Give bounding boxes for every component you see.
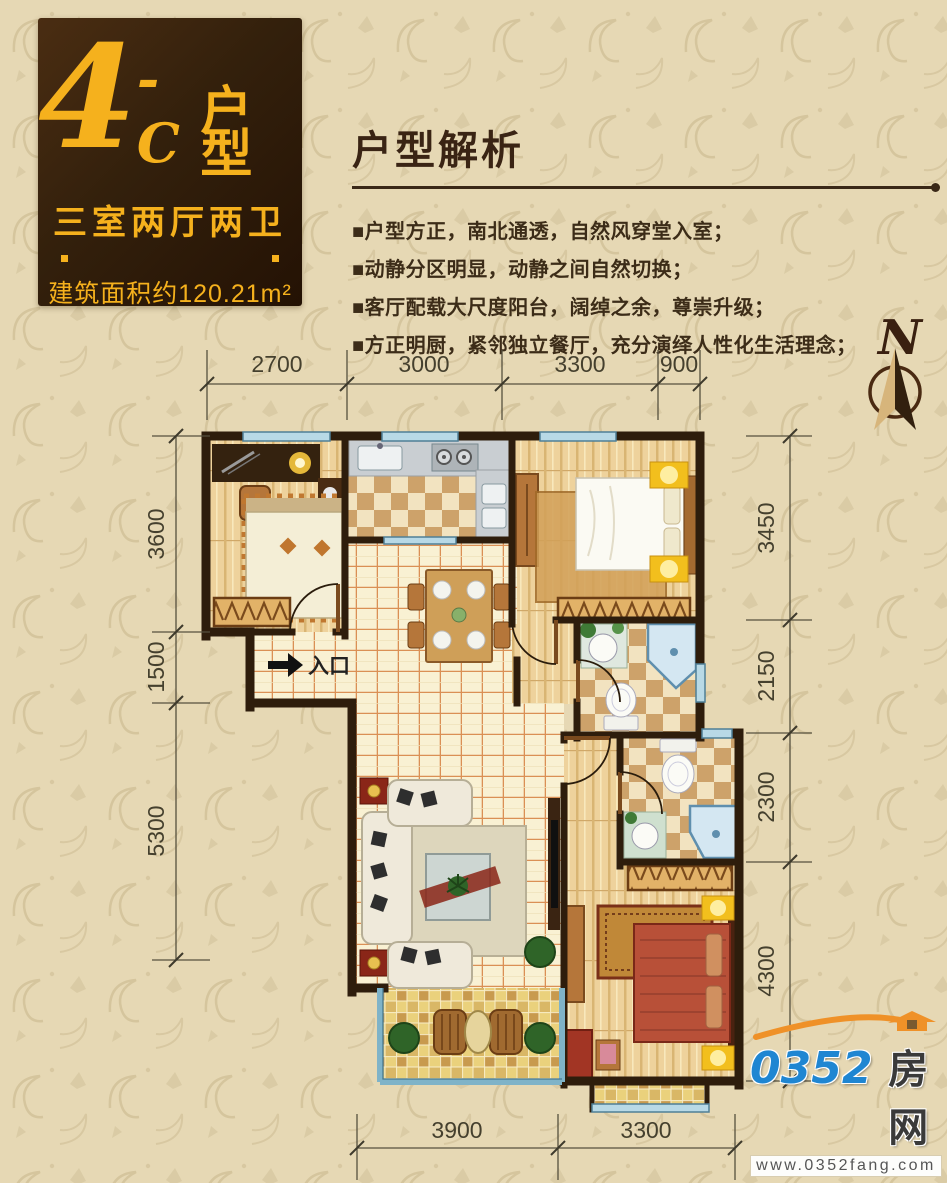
dim-top: 900 (660, 351, 698, 377)
window (540, 432, 616, 441)
poster-canvas: 4 -C 户型 三室两厅两卫 建筑面积约120.21m² 户型解析 ■户型方正，… (0, 0, 947, 1183)
compass-icon: N (870, 310, 924, 430)
bay-window-sill (592, 1104, 709, 1112)
compass-label: N (876, 310, 924, 366)
entrance-label: 入口 (308, 655, 350, 678)
corridor-floor (512, 624, 577, 704)
window (382, 432, 458, 441)
logo-url: www.0352fang.com (750, 1155, 942, 1177)
dim-right: 2150 (753, 650, 779, 701)
dim-right: 2300 (753, 771, 779, 822)
floor-plan: 入口 (0, 0, 947, 1183)
window (243, 432, 330, 441)
dim-right: 3450 (753, 502, 779, 553)
logo-text: 0352 房网 (750, 1037, 942, 1153)
dim-bottom: 3300 (620, 1117, 671, 1143)
dim-top: 3000 (398, 351, 449, 377)
dim-left: 5300 (143, 805, 169, 856)
logo-roof-icon (752, 1008, 940, 1040)
dim-top: 3300 (554, 351, 605, 377)
site-logo: 0352 房网 www.0352fang.com (750, 1008, 942, 1177)
window (696, 664, 705, 702)
dim-top: 2700 (251, 351, 302, 377)
dim-left: 1500 (143, 641, 169, 692)
logo-number: 0352 (750, 1043, 872, 1094)
kitchen-pass-window (384, 537, 456, 544)
dim-right: 4300 (753, 945, 779, 996)
window (702, 729, 732, 738)
logo-cn: 房网 (874, 1037, 942, 1153)
dim-left: 3600 (143, 508, 169, 559)
dim-bottom: 3900 (431, 1117, 482, 1143)
